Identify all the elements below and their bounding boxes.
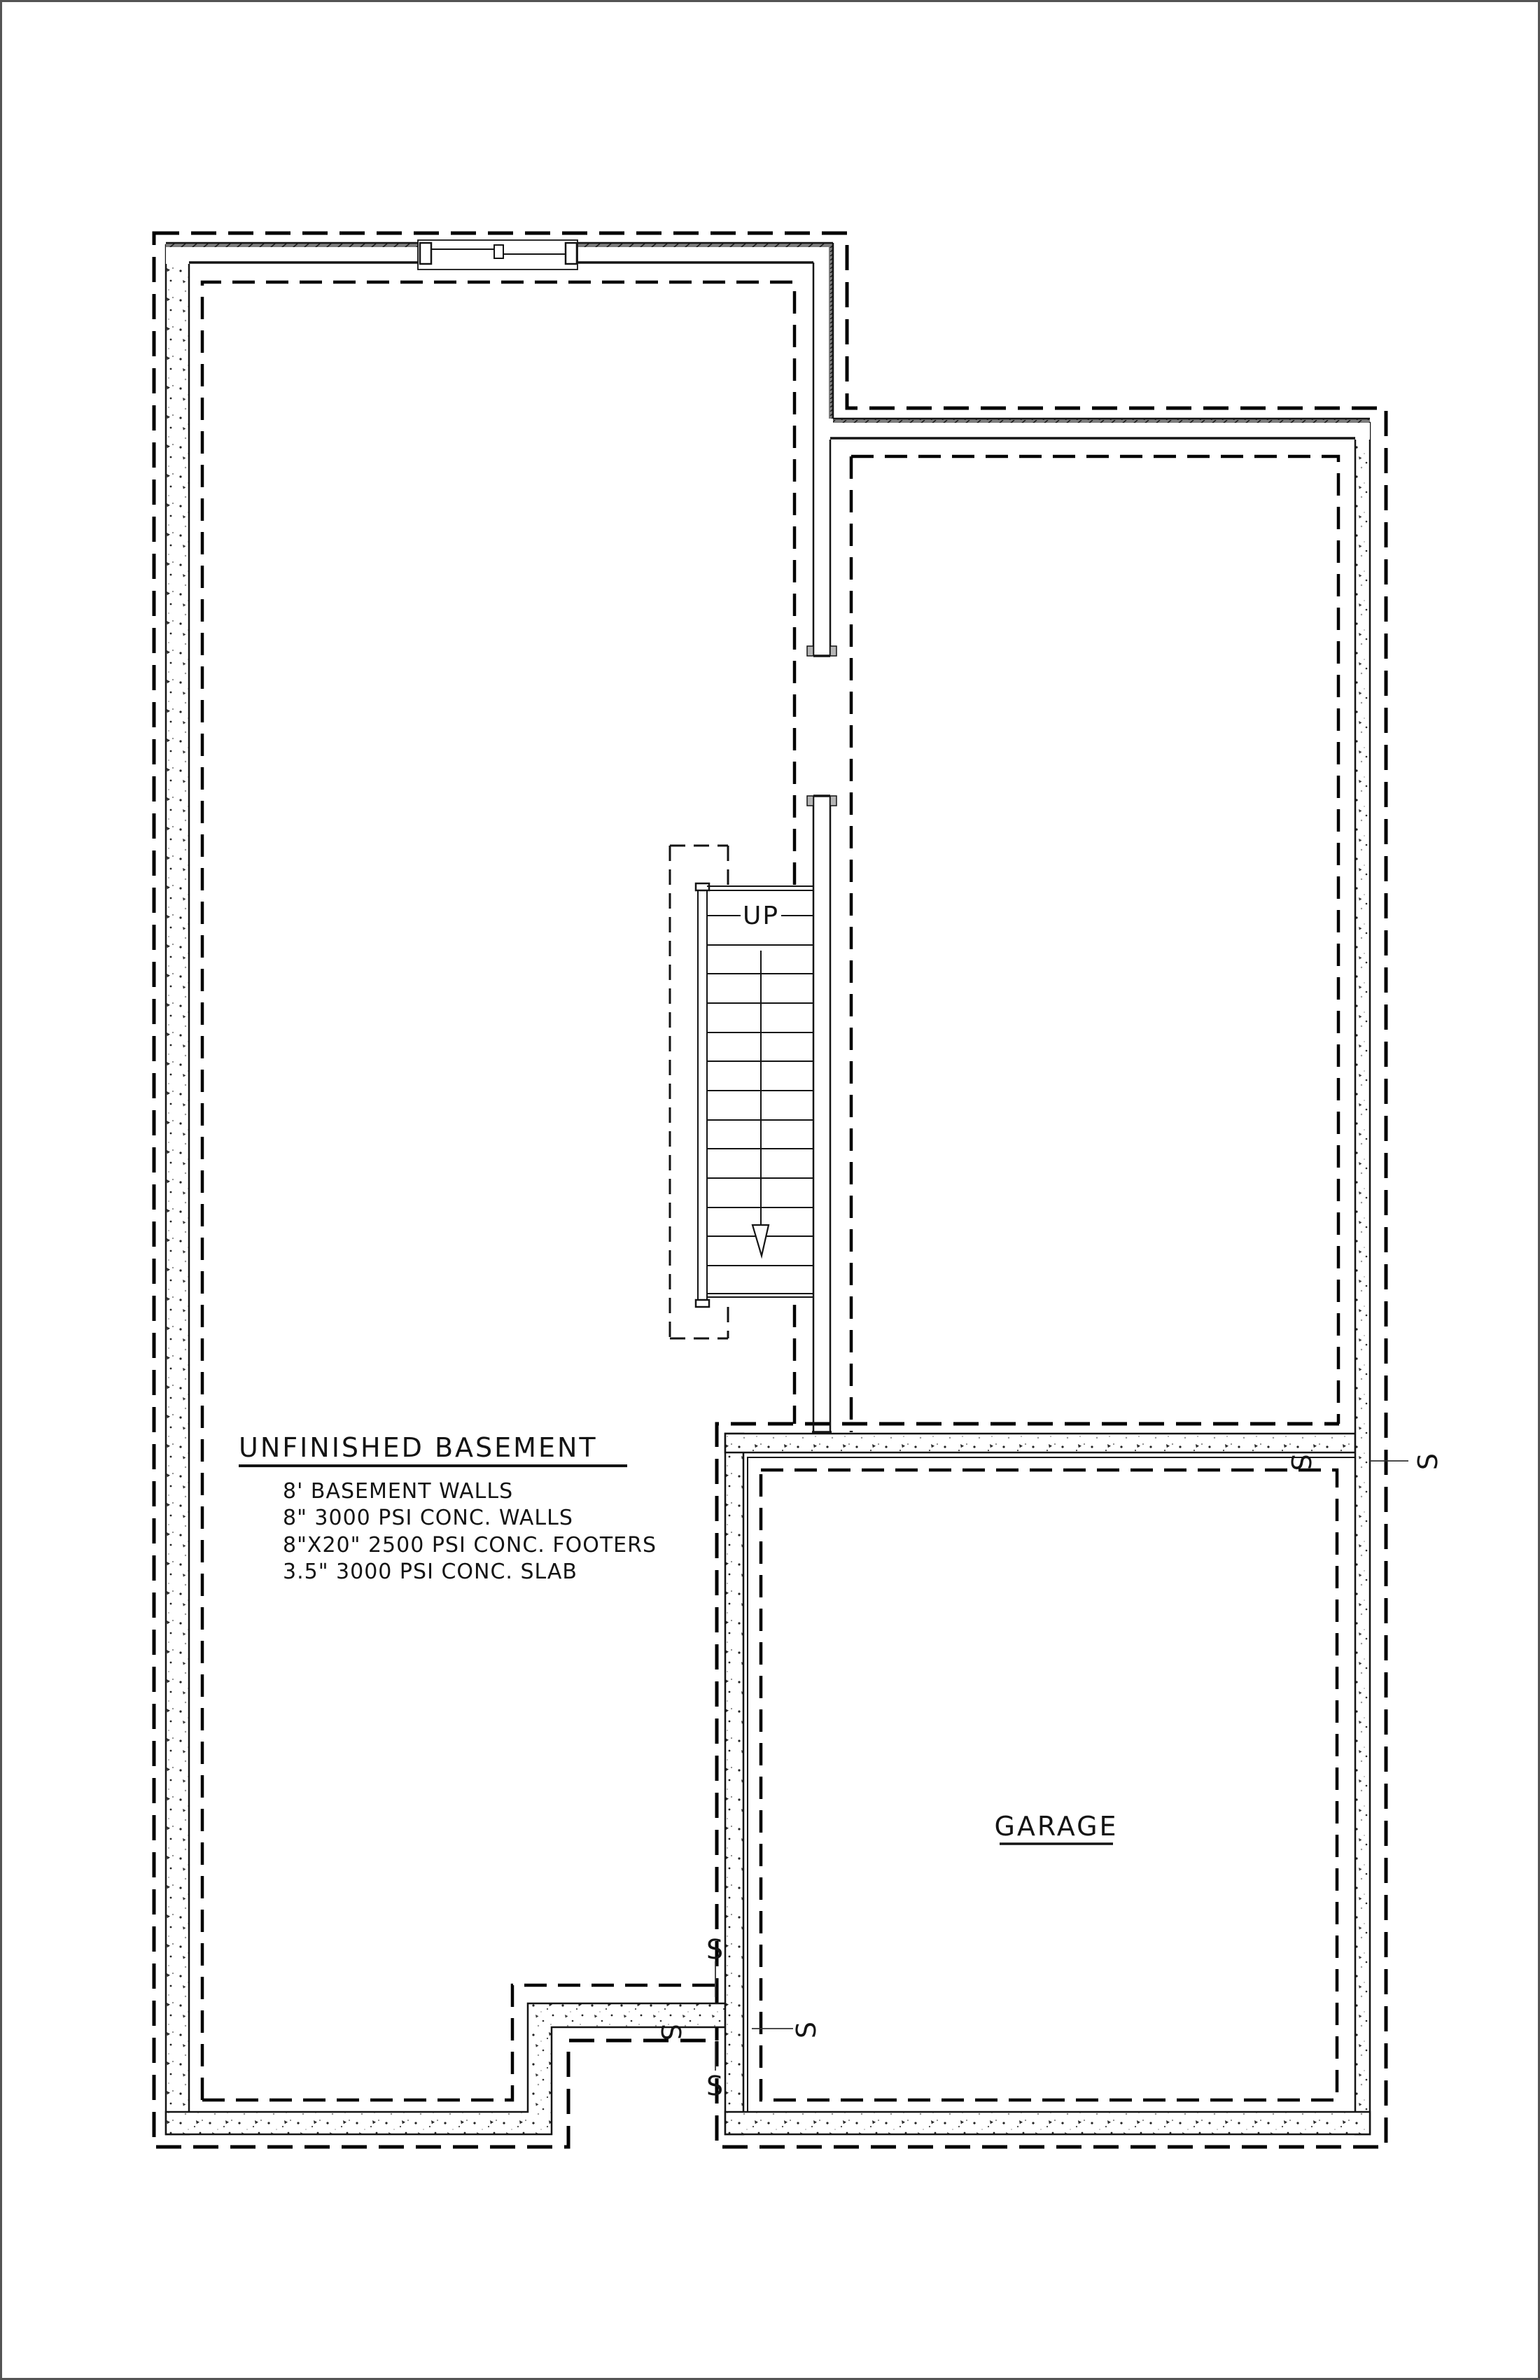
stairs: UP [670,846,813,1338]
basement-room-label: UNFINISHED BASEMENT [239,1432,598,1463]
switch-marker: S [706,1934,723,1965]
garage-north-wall [725,1434,1355,1452]
floor-plan-drawing: UP S S S S S S UNFINISHED BASEMENT 8' BA… [0,0,1540,2380]
west-basement-wall [166,245,189,2134]
leader-lines [715,1461,1408,2071]
switch-marker: S [1285,1454,1316,1471]
note-line: 8' BASEMENT WALLS [283,1479,513,1504]
annotations: UNFINISHED BASEMENT 8' BASEMENT WALLS 8"… [239,1432,1119,1844]
window-jamb-right [566,243,577,264]
switch-marker: S [1413,1453,1443,1470]
note-line: 8" 3000 PSI CONC. WALLS [283,1506,573,1530]
doorway-jamb-blocks [807,646,836,806]
blueprint-page: UP S S S S S S UNFINISHED BASEMENT 8' BA… [0,0,1540,2380]
framed-walls [166,243,1370,1432]
garage-furring-line [748,1457,1355,2112]
window-symbol [418,240,577,269]
south-basement-wall-with-notch [166,2003,725,2134]
switch-marker: S [655,2024,686,2040]
garage-south-wall [725,2112,1370,2134]
note-line: 3.5" 3000 PSI CONC. SLAB [283,1560,577,1584]
stair-arrowhead [752,1225,769,1256]
footer-dashed-outer [154,233,1386,2147]
concrete-walls [166,245,1370,2134]
stair-stringer [698,886,707,1307]
garage-room-label: GARAGE [994,1811,1118,1842]
switch-marker: S [706,2071,723,2101]
footer-dashed-inner [202,282,1338,2100]
stairs-up-label: UP [743,902,779,930]
switch-markers: S S S S S S [655,1453,1443,2101]
window-center-sash [494,245,503,258]
note-line: 8"X20" 2500 PSI CONC. FOOTERS [283,1533,657,1557]
garage-west-wall [725,1434,743,2134]
page-border [1,1,1539,2379]
east-exterior-wall [1355,423,1370,2134]
window-jamb-left [420,243,431,264]
switch-marker: S [791,2022,822,2038]
